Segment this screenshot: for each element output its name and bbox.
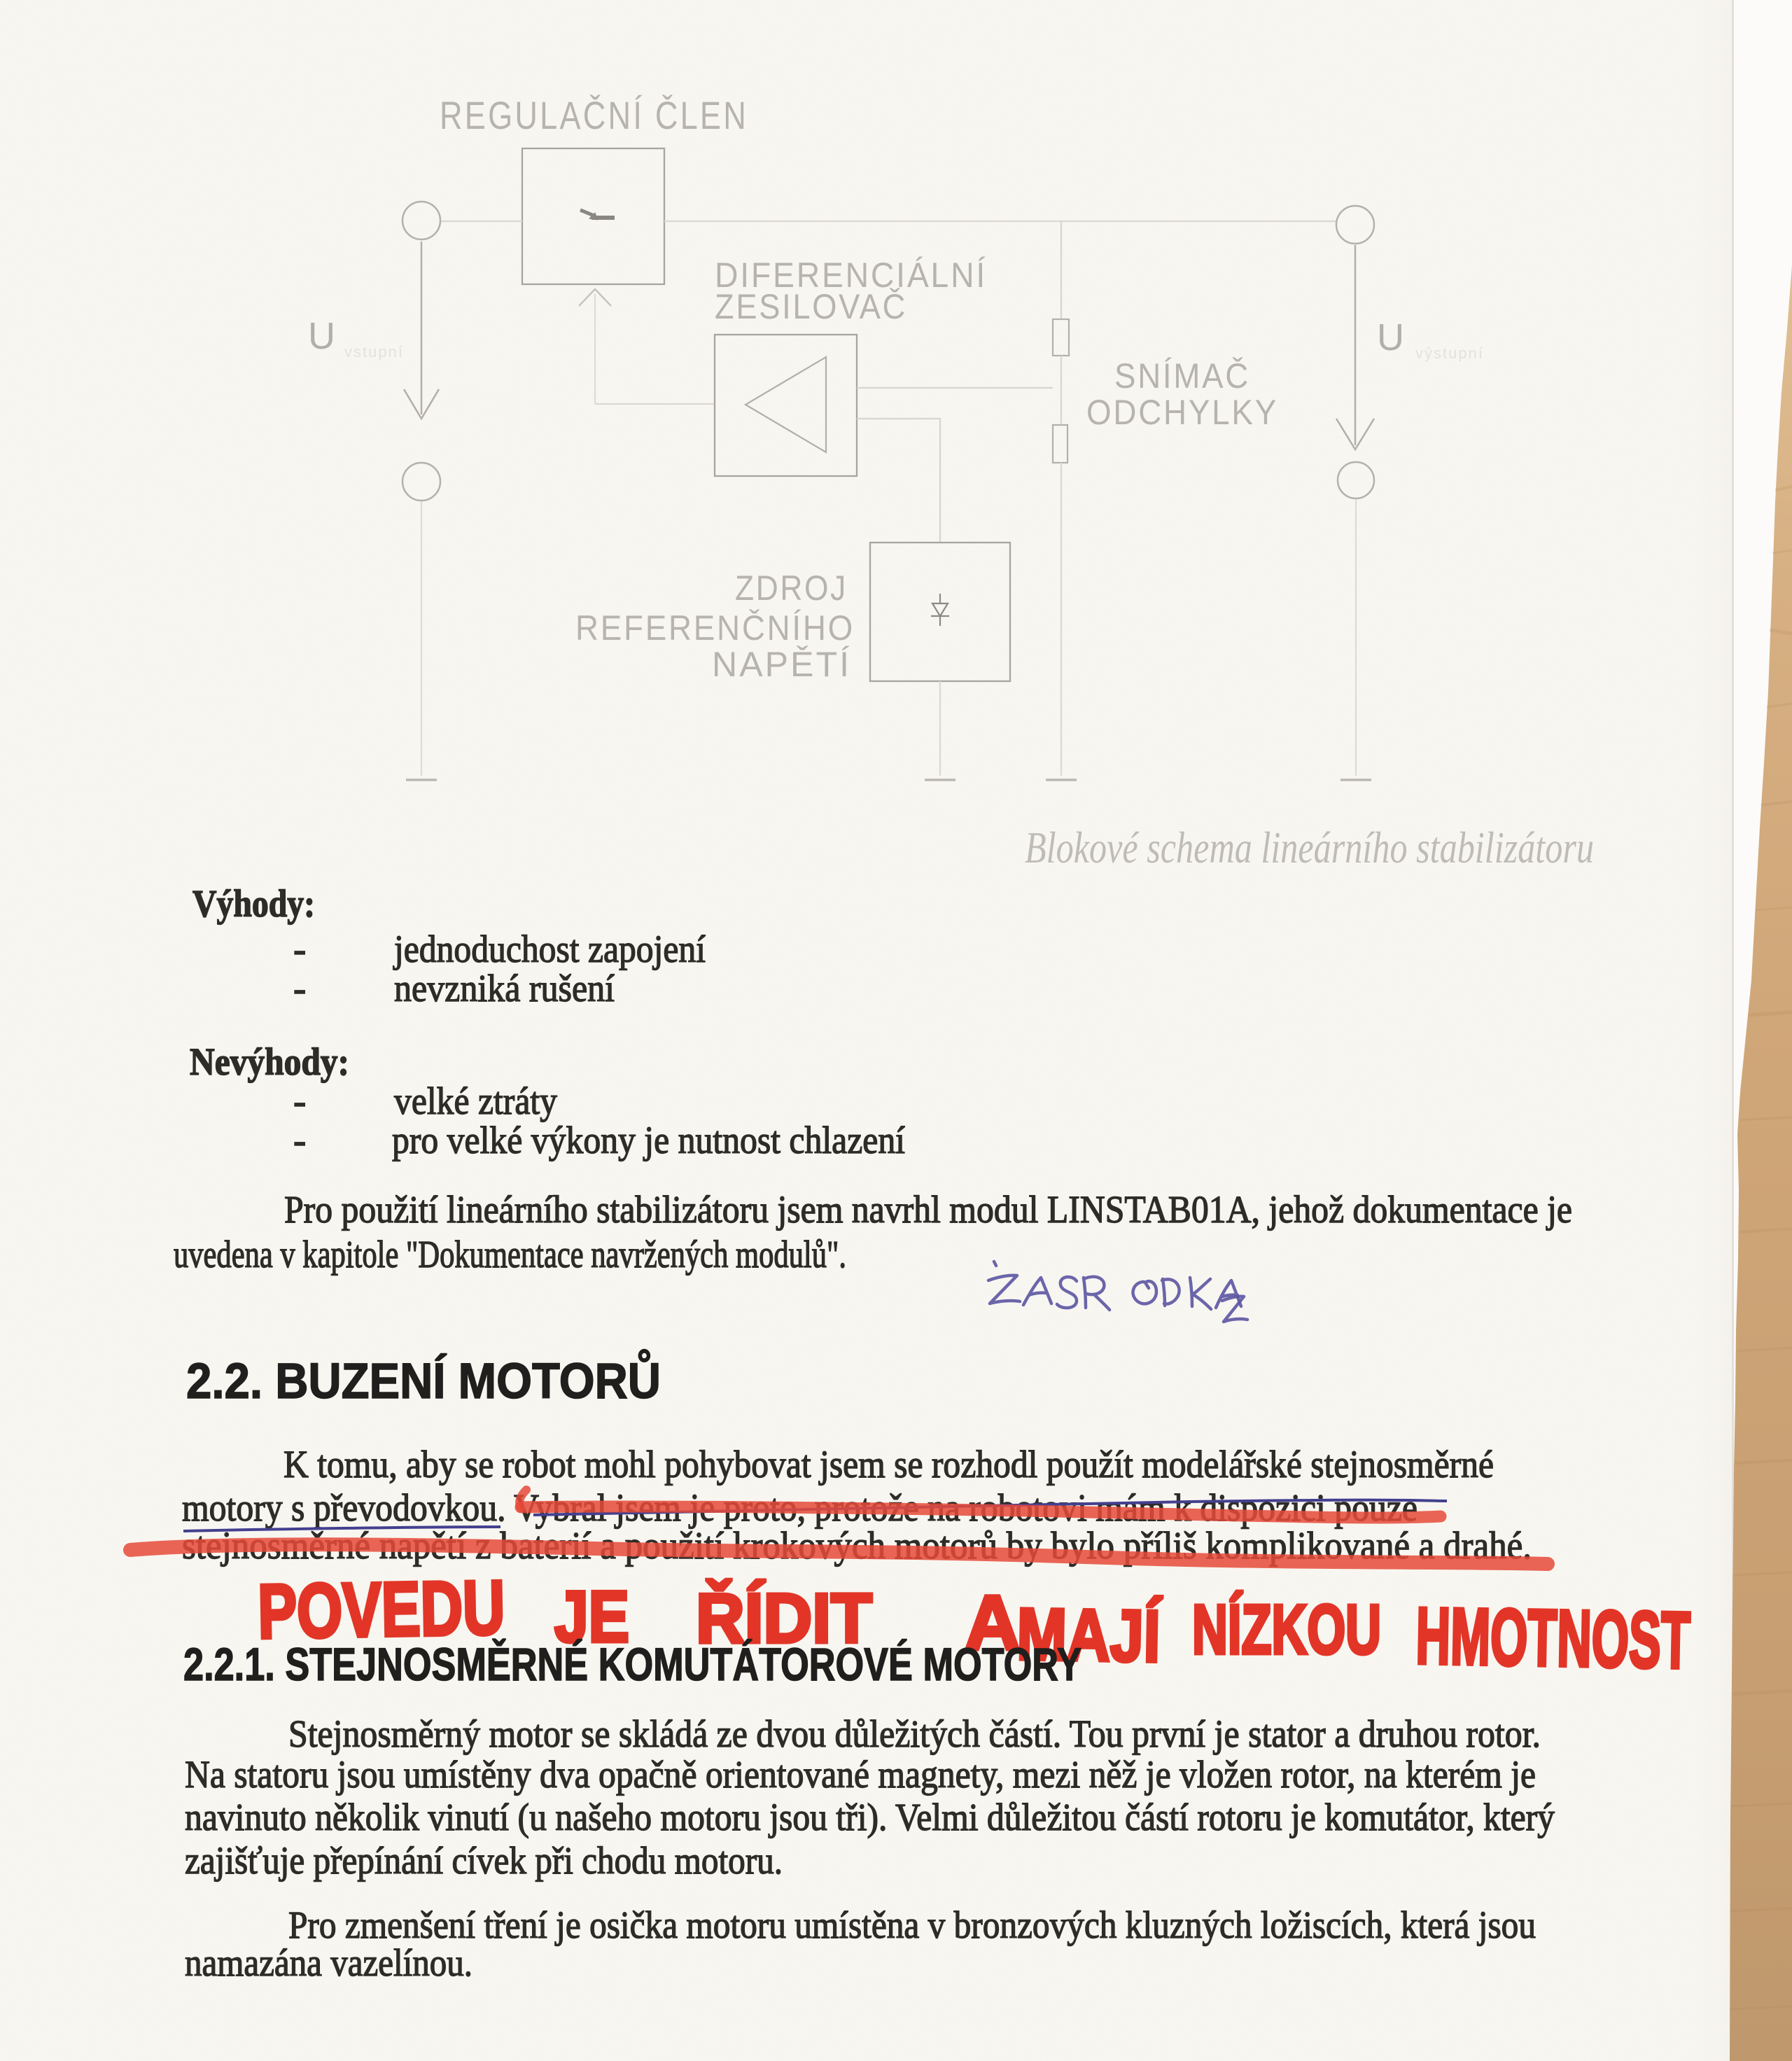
svg-text:pro velké výkony je nutnost ch: pro velké výkony je nutnost chlazení xyxy=(392,1119,905,1161)
svg-text:REFERENČNÍHO: REFERENČNÍHO xyxy=(575,608,855,648)
svg-text:ODCHYLKY: ODCHYLKY xyxy=(1086,393,1278,432)
svg-text:nevzniká rušení: nevzniká rušení xyxy=(394,967,615,1009)
svg-text:-: - xyxy=(293,928,306,970)
svg-text:Nevýhody:: Nevýhody: xyxy=(190,1040,349,1083)
svg-text:výstupní: výstupní xyxy=(1415,344,1484,362)
svg-text:Na statoru jsou umístěny dva o: Na statoru jsou umístěny dva opačně orie… xyxy=(185,1753,1536,1796)
svg-text:U: U xyxy=(308,315,335,357)
svg-text:Stejnosměrný motor se skládá z: Stejnosměrný motor se skládá ze dvou důl… xyxy=(288,1712,1541,1755)
svg-text:REGULAČNÍ ČLEN: REGULAČNÍ ČLEN xyxy=(440,93,748,137)
svg-text:-: - xyxy=(293,1119,306,1161)
svg-text:vstupní: vstupní xyxy=(344,343,404,361)
svg-text:Výhody:: Výhody: xyxy=(192,882,315,925)
svg-text:velké ztráty: velké ztráty xyxy=(394,1080,557,1122)
svg-text:Pro použití lineárního stabili: Pro použití lineárního stabilizátoru jse… xyxy=(284,1188,1572,1231)
svg-text:SNÍMAČ: SNÍMAČ xyxy=(1114,356,1250,396)
svg-text:U: U xyxy=(1377,316,1404,358)
svg-text:zajišťuje přepínání cívek při: zajišťuje přepínání cívek při chodu moto… xyxy=(185,1839,783,1882)
svg-text:2.2.1. STEJNOSMĚRNÉ KOMUTÁTORO: 2.2.1. STEJNOSMĚRNÉ KOMUTÁTOROVÉ MOTORY xyxy=(183,1638,1081,1690)
svg-text:jednoduchost zapojení: jednoduchost zapojení xyxy=(393,928,706,970)
svg-text:NAPĚTÍ: NAPĚTÍ xyxy=(712,645,851,684)
svg-text:HMOTNOST: HMOTNOST xyxy=(1415,1591,1691,1686)
svg-text:Pro zmenšení tření je osička m: Pro zmenšení tření je osička motoru umís… xyxy=(288,1903,1536,1946)
svg-text:ZESILOVAČ: ZESILOVAČ xyxy=(715,287,907,326)
svg-text:-: - xyxy=(293,967,306,1009)
svg-text:2.2. BUZENÍ MOTORŮ: 2.2. BUZENÍ MOTORŮ xyxy=(186,1350,661,1409)
svg-text:NÍZKOU: NÍZKOU xyxy=(1192,1591,1381,1669)
svg-text:uvedena v kapitole "Dokumentac: uvedena v kapitole "Dokumentace navržený… xyxy=(174,1233,846,1276)
svg-text:Blokové schema lineárního stab: Blokové schema lineárního stabilizátoru xyxy=(1025,823,1594,872)
svg-text:namazána vazelínou.: namazána vazelínou. xyxy=(185,1941,472,1984)
svg-text:-: - xyxy=(293,1080,306,1122)
svg-text:navinuto několik vinutí (u naš: navinuto několik vinutí (u našeho motoru… xyxy=(185,1796,1555,1838)
svg-text:K tomu, aby se robot mohl pohy: K tomu, aby se robot mohl pohybovat jsem… xyxy=(283,1443,1494,1486)
svg-text:ZDROJ: ZDROJ xyxy=(735,568,848,608)
